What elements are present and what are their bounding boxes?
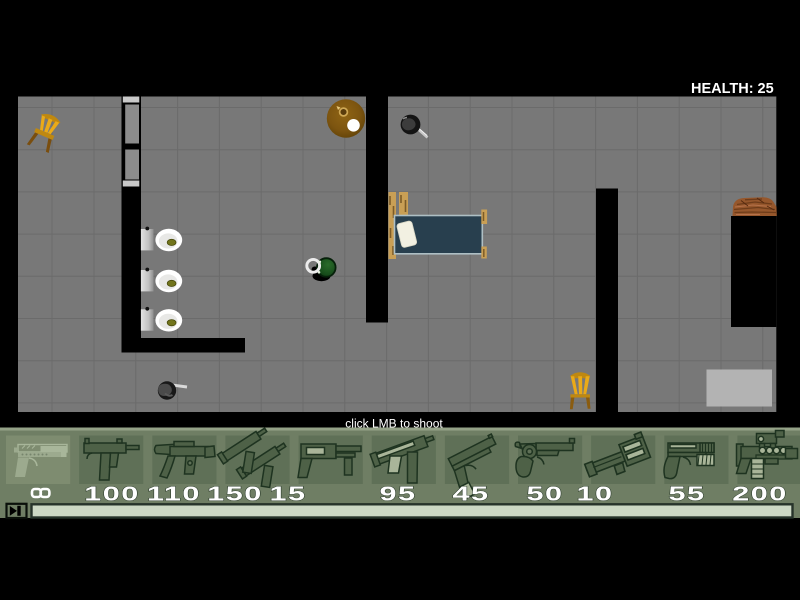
svg-text:15: 15 [269, 484, 306, 506]
svg-text:50: 50 [526, 484, 563, 506]
svg-text:150: 150 [207, 484, 263, 506]
svg-text:55: 55 [668, 484, 705, 506]
svg-text:95: 95 [379, 484, 416, 506]
svg-text:25: 25 [758, 81, 774, 97]
svg-text:110: 110 [147, 484, 201, 506]
svg-text:10: 10 [576, 484, 613, 506]
svg-text:HEALTH:: HEALTH: [691, 81, 754, 97]
svg-text:100: 100 [84, 484, 140, 506]
svg-text:45: 45 [452, 484, 489, 506]
svg-text:200: 200 [732, 484, 788, 506]
